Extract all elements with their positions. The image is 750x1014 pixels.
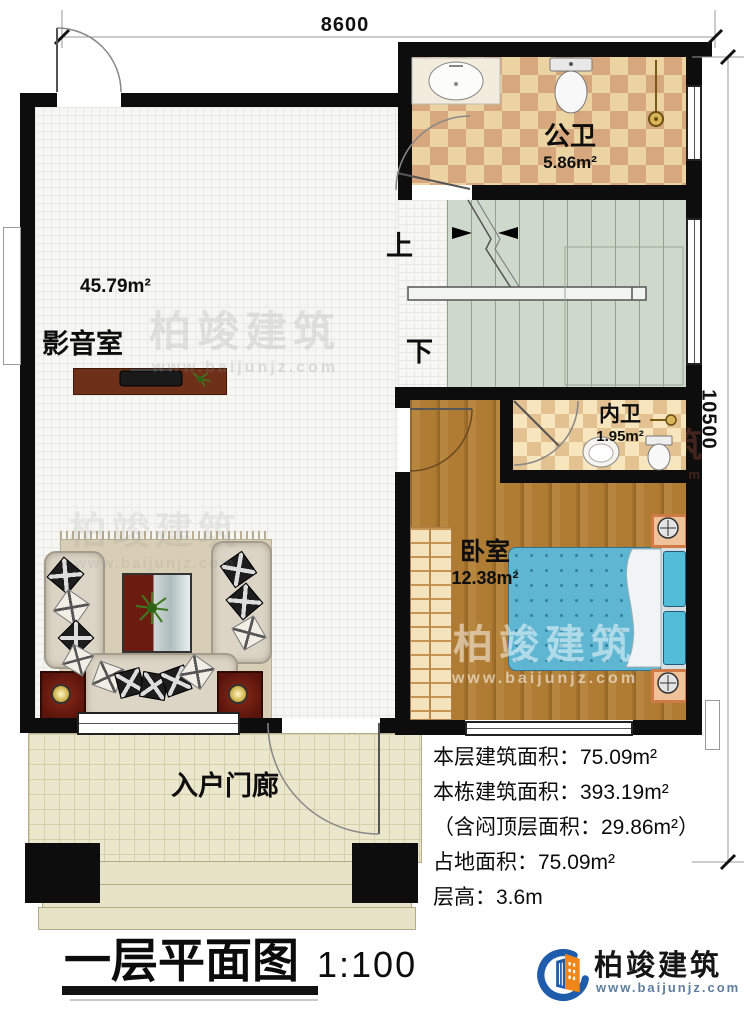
brand-logo: 柏竣建筑 www.baijunjz.com [536,938,746,1004]
room-area: 12.38m² [420,568,550,589]
public-bath-sink [412,58,500,104]
plan-scale: 1:100 [317,944,417,986]
door-public-bath [396,116,470,190]
brand-website: www.baijunjz.com [596,980,740,995]
room-name: 公卫 [470,116,670,153]
door-entry-top-left [57,28,121,92]
dimension-height: 10500 [697,380,720,460]
room-label-porch: 入户门廊 [130,764,320,803]
stairs-break-line [452,200,520,288]
stairs-down-label: 下 [406,330,433,369]
door-bedroom [410,409,472,471]
plant-on-cabinet [193,373,210,386]
info-line: 本层建筑面积：75.09m² [433,740,743,775]
room-label-bedroom: 卧室 12.38m² [420,532,550,589]
bed-duvet [626,549,661,667]
public-bath-toilet [550,58,592,113]
plant-on-table [136,592,168,624]
room-area: 5.86m² [470,153,670,173]
top-dimension-line [55,10,722,48]
info-panel: 本层建筑面积：75.09m² 本栋建筑面积：393.19m² （含闷顶层面积：2… [433,740,743,915]
title-underline-thin [70,999,318,1001]
watermark-url: www.baijunjz.com [686,467,748,482]
tv-on-cabinet [120,370,182,386]
media-room-area: 45.79m² [80,276,151,298]
stairs-up-label: 上 [386,224,413,263]
nightstand-lamp [658,518,678,538]
title-underline [62,986,318,995]
info-line: （含闷顶层面积：29.86m²） [433,810,743,845]
room-label-media-room: 影音室 [42,322,123,361]
stairs-handrail [408,247,683,385]
info-line: 层高：3.6m [433,880,743,915]
room-name: 卧室 [420,532,550,568]
info-line: 占地面积：75.09m² [433,845,743,880]
room-label-inner-bath: 内卫 1.95m² [560,398,680,445]
brand-logo-icon [536,944,592,1006]
room-name: 内卫 [560,398,680,428]
info-line: 本栋建筑面积：393.19m² [433,775,743,810]
nightstand-lamp [658,673,678,693]
dimension-width: 8600 [305,14,385,37]
brand-name: 柏竣建筑 [594,942,722,984]
room-label-public-bath: 公卫 5.86m² [470,116,670,173]
title-block: 一层平面图 1:100 [64,922,417,991]
room-area: 1.95m² [560,428,680,445]
plan-title: 一层平面图 [64,922,299,991]
floor-plan: 柏竣建筑 www.baijunjz.com 柏竣建筑 www.baijunjz.… [0,0,750,1014]
